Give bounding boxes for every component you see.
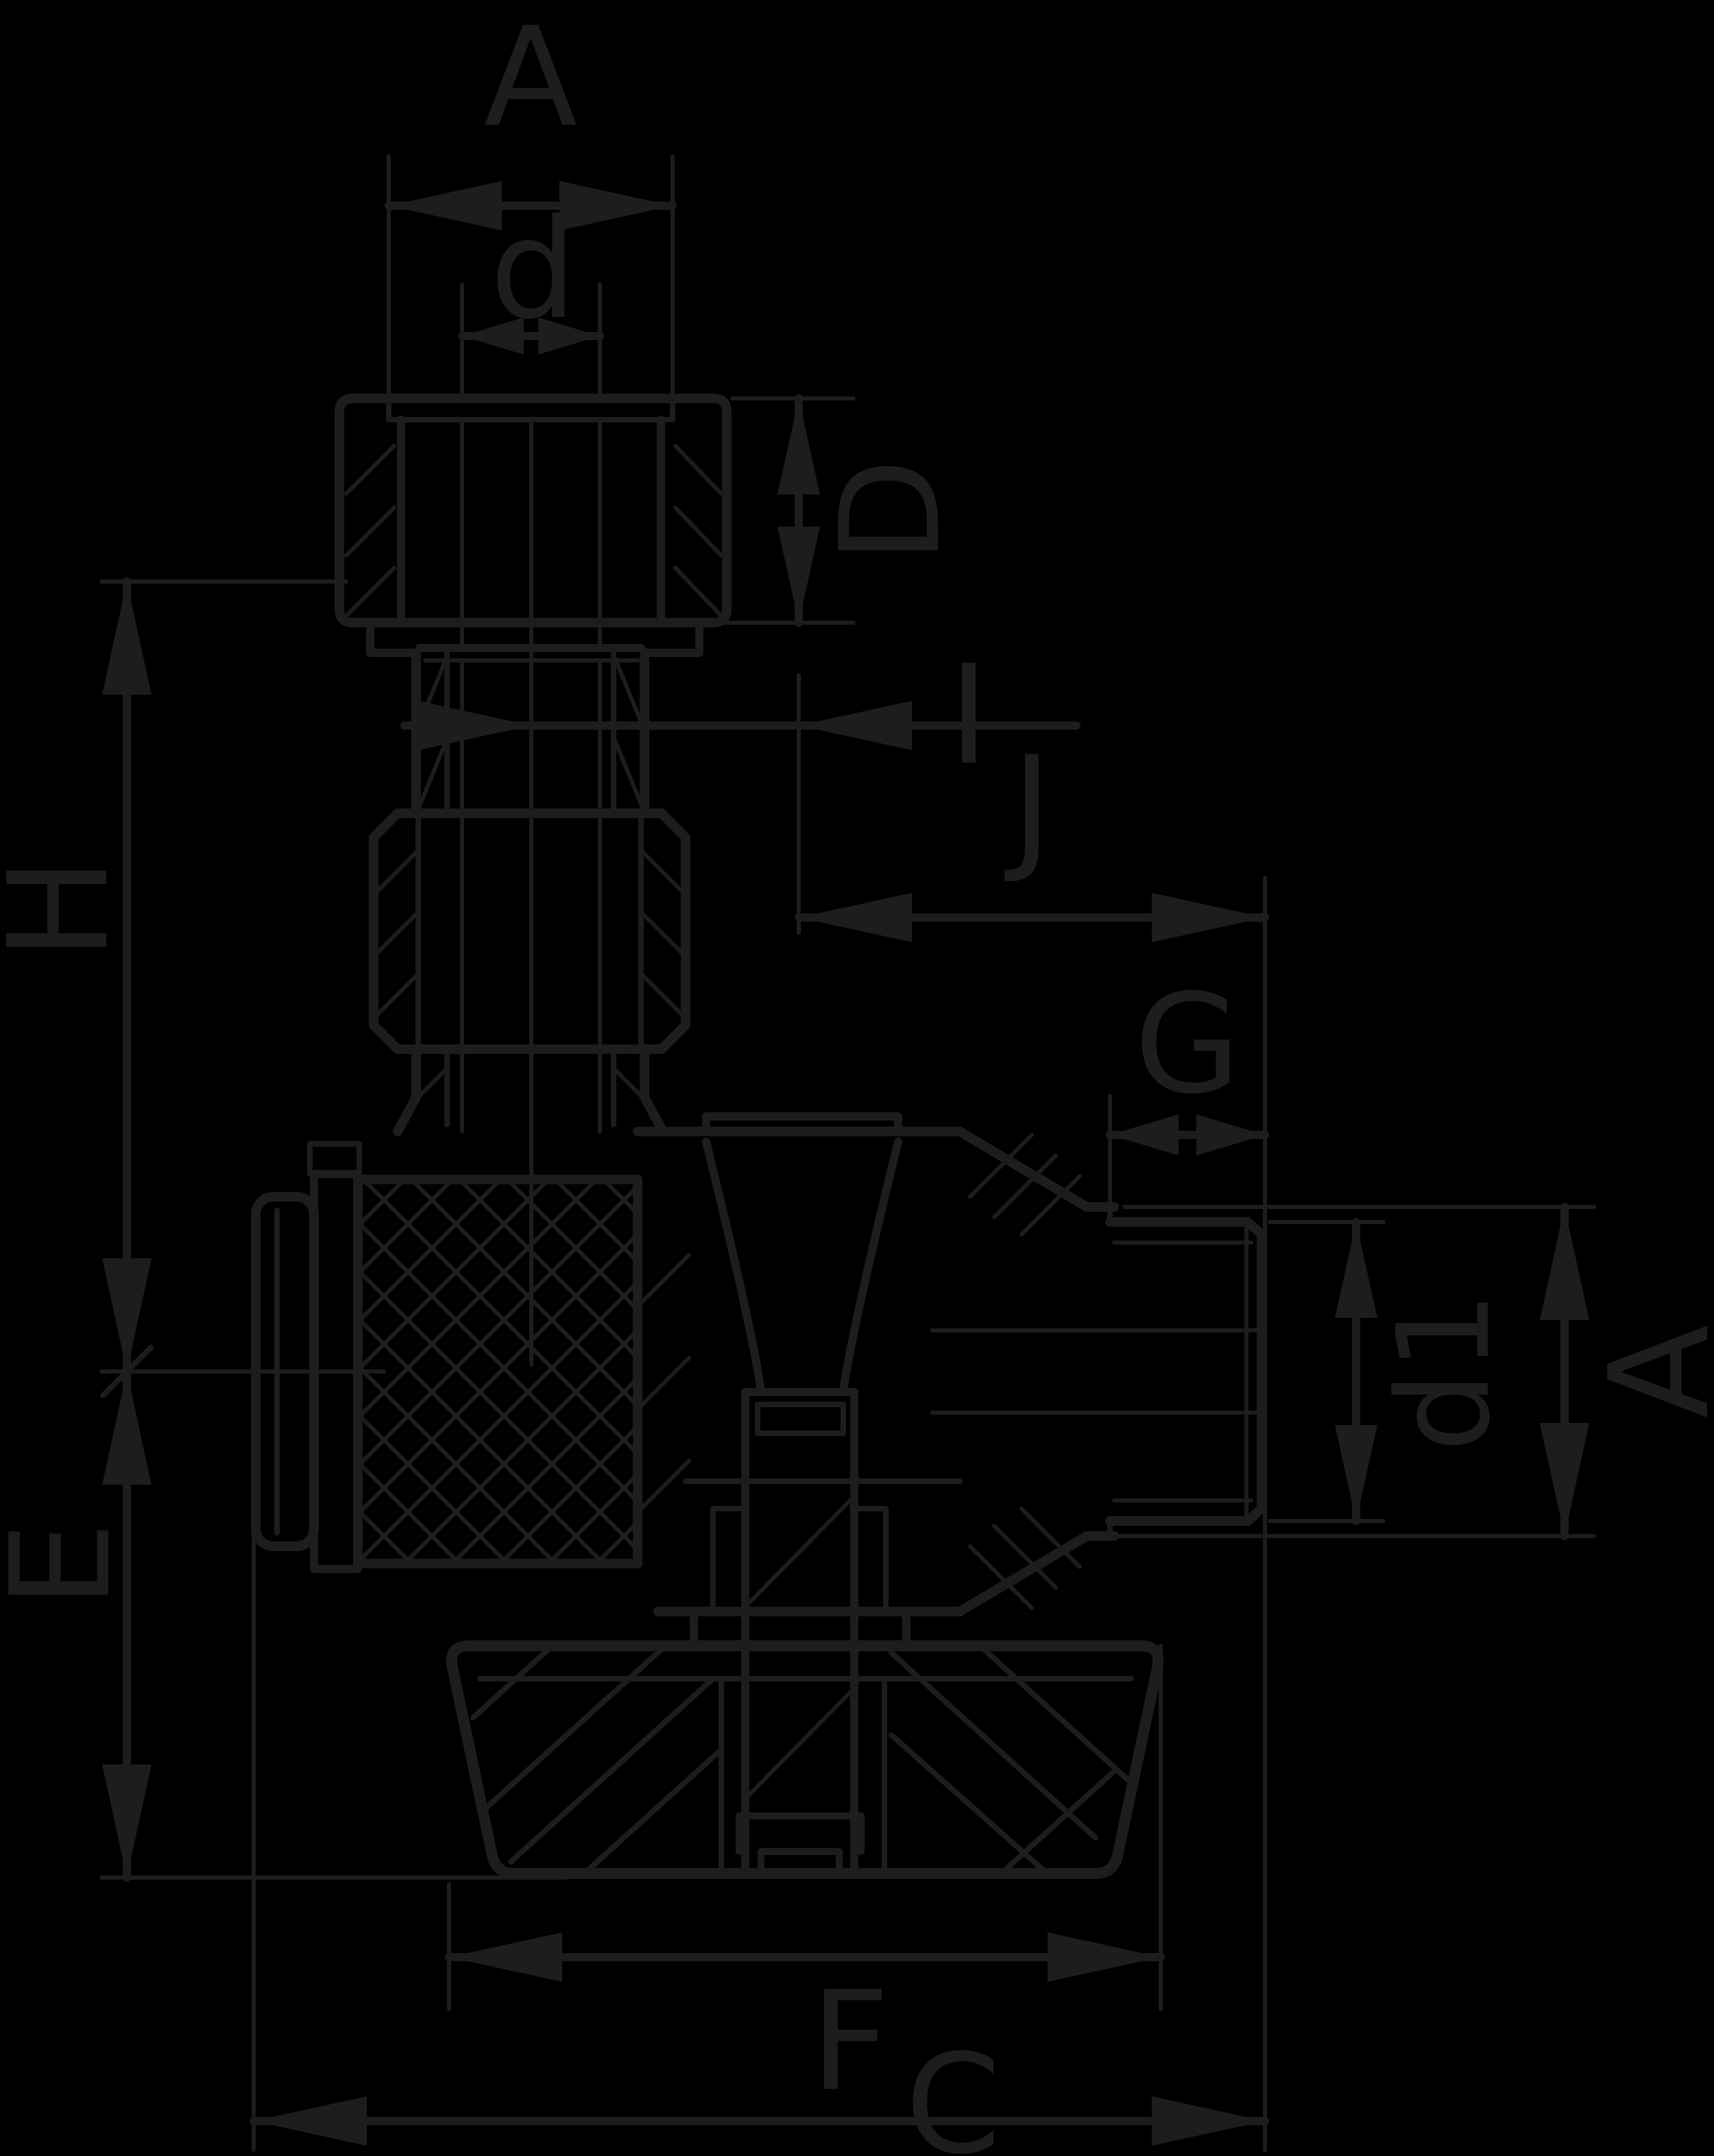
dim-label-F: F <box>810 1962 889 2122</box>
valve-section-drawing: A d D H E I <box>0 0 1714 2156</box>
dim-label-D: D <box>811 458 971 564</box>
handle <box>452 1646 1159 1873</box>
spindle <box>745 1392 854 1873</box>
dim-H: H <box>0 582 384 1396</box>
dim-label-H: H <box>0 857 139 960</box>
dim-label-C: C <box>905 2025 1001 2156</box>
dim-label-I: I <box>949 636 989 795</box>
dim-label-d1: d1 <box>1370 1291 1518 1452</box>
valve-body <box>638 1116 1087 1646</box>
dim-label-E: E <box>0 1522 141 1608</box>
knurled-grip <box>358 1179 638 1564</box>
dim-label-a-top: A <box>484 0 578 158</box>
dim-F: F <box>449 1646 1161 2122</box>
drawing-page: A d D H E I <box>0 0 1714 2156</box>
threaded-stud <box>932 1222 1262 1521</box>
washer <box>310 1144 359 1569</box>
dim-G: G <box>1110 965 1265 1219</box>
dim-label-J: J <box>1004 727 1052 887</box>
dim-label-G: G <box>1135 965 1241 1125</box>
dim-D: D <box>705 398 971 623</box>
dim-J: J <box>799 727 1265 942</box>
right-port-hex <box>1087 1207 1114 1536</box>
dim-label-A-right: A <box>1580 1325 1714 1419</box>
dim-label-d: d <box>490 190 577 350</box>
dim-d1: d1 <box>1270 1222 1518 1521</box>
